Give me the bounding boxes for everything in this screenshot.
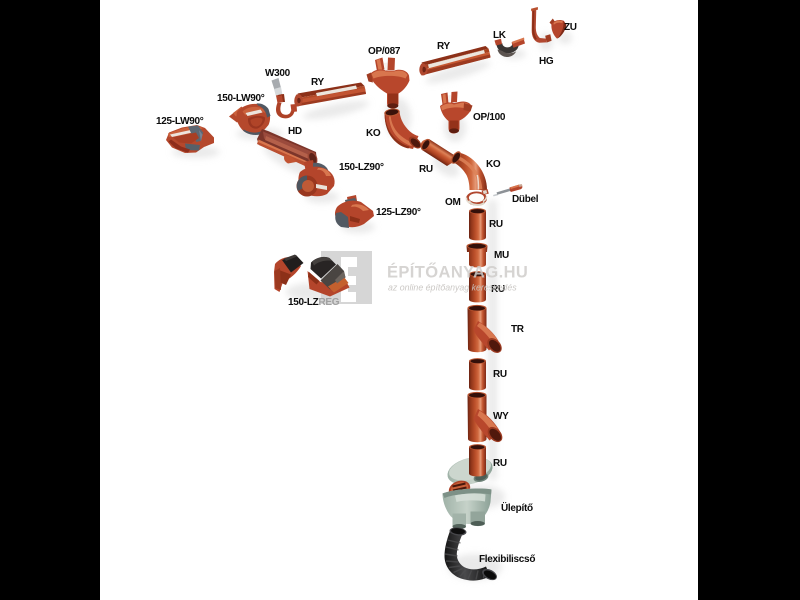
svg-text:HD: HD [288, 126, 302, 137]
svg-text:RU: RU [493, 369, 507, 380]
svg-text:RU: RU [489, 219, 503, 230]
svg-text:Ülepítő: Ülepítő [501, 501, 533, 514]
svg-text:HG: HG [539, 56, 554, 67]
svg-text:OM: OM [445, 197, 461, 208]
svg-text:150-LZ90°: 150-LZ90° [339, 162, 384, 173]
svg-text:OP/100: OP/100 [473, 112, 506, 123]
svg-text:LK: LK [493, 30, 507, 41]
svg-text:KO: KO [486, 159, 501, 170]
svg-text:KO: KO [366, 128, 381, 139]
svg-text:125-LZ90°: 125-LZ90° [376, 207, 421, 218]
svg-text:W300: W300 [265, 68, 291, 79]
svg-text:OP/087: OP/087 [368, 46, 401, 57]
svg-text:WY: WY [493, 411, 509, 422]
svg-text:150-LZREG: 150-LZREG [288, 297, 340, 308]
svg-text:150-LW90°: 150-LW90° [217, 93, 265, 104]
svg-text:az online építőanyag kereskedé: az online építőanyag kereskedés [388, 283, 517, 293]
svg-text:Dübel: Dübel [512, 194, 539, 205]
svg-text:ÉPÍTŐANYAG.HU: ÉPÍTŐANYAG.HU [387, 263, 528, 282]
svg-text:RY: RY [437, 41, 451, 52]
svg-text:ZU: ZU [564, 22, 577, 33]
svg-text:MU: MU [494, 250, 509, 261]
svg-text:RY: RY [311, 77, 325, 88]
svg-text:RU: RU [493, 458, 507, 469]
svg-text:Flexibiliscső: Flexibiliscső [479, 554, 535, 565]
svg-text:125-LW90°: 125-LW90° [156, 116, 204, 127]
svg-text:RU: RU [419, 164, 433, 175]
svg-text:TR: TR [511, 324, 525, 335]
